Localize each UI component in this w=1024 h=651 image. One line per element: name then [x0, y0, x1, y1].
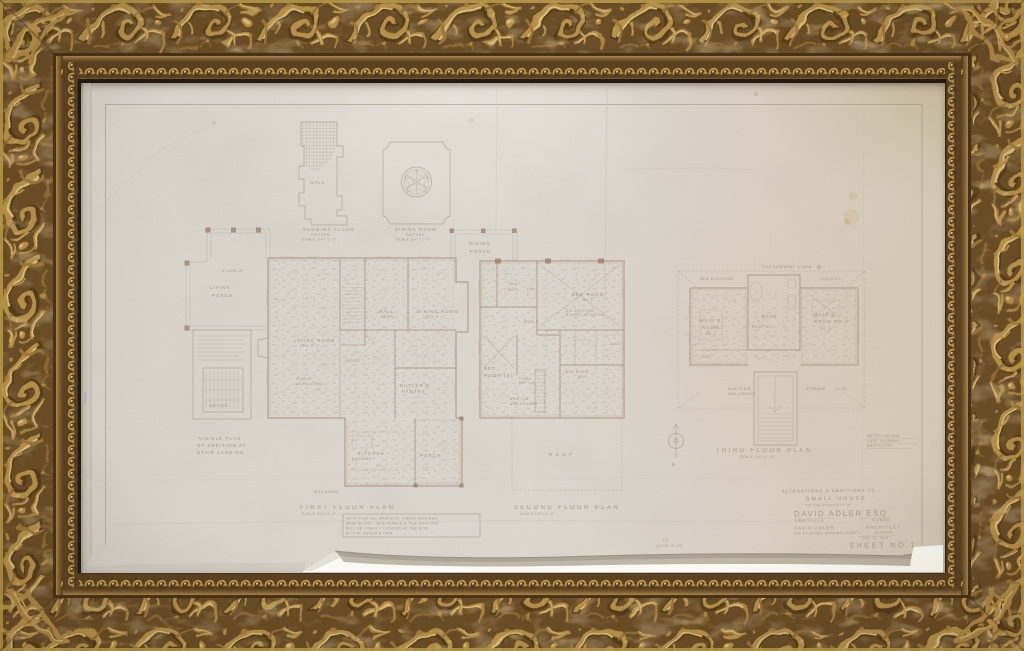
svg-text:ALTERATIONS & ADDITIONS TO: ALTERATIONS & ADDITIONS TO [782, 488, 876, 494]
svg-text:DOWN: DOWN [381, 315, 394, 319]
svg-text:CLOS: CLOS [610, 342, 621, 346]
svg-text:CEIL 9'-2": CEIL 9'-2" [300, 344, 320, 348]
svg-text:OF ADDITION AT: OF ADDITION AT [197, 443, 247, 448]
svg-text:CHICAGO: CHICAGO [874, 530, 893, 534]
svg-text:DAVID ADLER: DAVID ADLER [794, 525, 835, 530]
svg-text:BOTTLE: BOTTLE [519, 381, 535, 385]
svg-text:THIS BASEMENT IN NEW: THIS BASEMENT IN NEW [762, 265, 812, 269]
svg-text:SHEET NO.1: SHEET NO.1 [849, 540, 917, 550]
svg-text:ROOM: ROOM [702, 325, 720, 330]
svg-text:PANELS: PANELS [296, 377, 312, 381]
svg-text:HALL: HALL [310, 180, 325, 185]
svg-text:AND SHOWER: AND SHOWER [510, 402, 538, 406]
svg-text:LIVING: LIVING [210, 285, 231, 290]
svg-text:BED ROOM: BED ROOM [566, 370, 588, 374]
svg-text:LIN: LIN [527, 287, 534, 291]
svg-text:MAID'S: MAID'S [700, 318, 721, 323]
svg-text:W.C.: W.C. [510, 282, 519, 286]
svg-text:LIVING ROOM: LIVING ROOM [294, 338, 335, 343]
svg-text:FENCE PO.: FENCE PO. [820, 277, 843, 281]
svg-text:645 DIVERSEY PARKWAY SOUTH: 645 DIVERSEY PARKWAY SOUTH [794, 531, 860, 536]
svg-text:CLOSET: CLOSET [345, 359, 361, 363]
svg-text:PORCH: PORCH [212, 293, 233, 298]
svg-text:CLOS: CLOS [836, 387, 847, 391]
svg-text:NEW STAIR: NEW STAIR [728, 387, 751, 391]
svg-text:FIRST FLOOR PLAN: FIRST FLOOR PLAN [300, 505, 395, 511]
svg-text:PANTRY: PANTRY [402, 389, 426, 394]
svg-text:DINING ROOM: DINING ROOM [417, 309, 459, 314]
svg-text:AS EXISTING: AS EXISTING [296, 382, 323, 386]
svg-text:DAVID ADLER ESQ: DAVID ADLER ESQ [794, 509, 888, 519]
svg-text:NO.2: NO.2 [583, 298, 593, 302]
svg-text:ILLINOIS: ILLINOIS [872, 518, 890, 522]
svg-text:'VISIBLE PLAN: 'VISIBLE PLAN [197, 436, 241, 441]
svg-text:SCALE 1/4"=1'-0": SCALE 1/4"=1'-0" [302, 512, 337, 516]
svg-text:EXCEPT AS NOTED: EXCEPT AS NOTED [566, 313, 605, 317]
svg-text:ARCHITECT: ARCHITECT [866, 524, 901, 529]
svg-text:METRO INDIANA: METRO INDIANA [867, 434, 900, 438]
svg-text:STORAGE: STORAGE [806, 387, 826, 391]
svg-text:NO.1: NO.1 [706, 332, 716, 336]
svg-text:NO.1: NO.1 [578, 375, 588, 379]
svg-text:CEIL 9': CEIL 9' [425, 315, 439, 319]
svg-text:ROOM NO.3: ROOM NO.3 [814, 319, 849, 324]
svg-text:BUTLER'S: BUTLER'S [400, 383, 430, 388]
svg-text:NEW TUB: NEW TUB [510, 397, 529, 401]
svg-text:HALL: HALL [524, 319, 539, 324]
svg-text:LIBERTYVILLE: LIBERTYVILLE [795, 519, 824, 523]
svg-text:BED: BED [484, 366, 496, 371]
svg-text:TO THE PROPERTY OF: TO THE PROPERTY OF [806, 503, 852, 507]
svg-text:BASE BLOCK, TRIM PANELS & TILE: BASE BLOCK, TRIM PANELS & TILE EXISTING [346, 522, 439, 526]
svg-text:AND LANDING: AND LANDING [728, 392, 756, 396]
svg-text:SCALE 3/4"=1'-0": SCALE 3/4"=1'-0" [396, 238, 431, 242]
svg-text:CAPTION: CAPTION [209, 404, 227, 408]
svg-text:WILL BE FINALLY LOCATED AT THE: WILL BE FINALLY LOCATED AT THE SITE [346, 527, 428, 531]
svg-text:THIRD FLOOR PLAN: THIRD FLOOR PLAN [716, 448, 812, 454]
svg-text:R O O F: R O O F [549, 452, 573, 457]
svg-text:SCALE 1/4"=1'-0": SCALE 1/4"=1'-0" [520, 512, 555, 516]
svg-text:PATTERN: PATTERN [406, 233, 425, 237]
svg-text:DINING: DINING [469, 241, 491, 246]
svg-text:STAIR LANDING: STAIR LANDING [197, 450, 244, 455]
svg-text:KITCHEN: KITCHEN [358, 451, 385, 456]
svg-text:SCALE 3/4"=1'-0": SCALE 3/4"=1'-0" [302, 238, 337, 242]
svg-text:PATTERN: PATTERN [311, 233, 330, 237]
svg-text:SCALE 1/4"=1'-0": SCALE 1/4"=1'-0" [740, 455, 775, 459]
svg-text:CASE SHOWING: CASE SHOWING [867, 439, 899, 443]
svg-text:BY THE OWNER'S OWN: BY THE OWNER'S OWN [346, 532, 393, 536]
svg-text:ROOM (3): ROOM (3) [484, 373, 513, 378]
svg-text:MILL HOUSE: MILL HOUSE [314, 490, 339, 494]
svg-text:BATH: BATH [762, 314, 778, 319]
svg-text:NO. 3: NO. 3 [820, 327, 831, 331]
svg-text:NOTE THAT ALL MARKETS, LINATE: NOTE THAT ALL MARKETS, LINATE RAILINGS, [346, 517, 439, 521]
svg-text:BED-ROOM: BED-ROOM [572, 292, 605, 297]
svg-text:ASSOCIATED: ASSOCIATED [867, 444, 893, 448]
svg-text:SHOWING FLOOR: SHOWING FLOOR [303, 227, 355, 232]
svg-text:DINING ROOM: DINING ROOM [395, 227, 437, 232]
svg-text:EXISTING: EXISTING [752, 325, 772, 329]
svg-text:BATH: BATH [508, 288, 519, 292]
svg-text:PORCH: PORCH [470, 249, 491, 254]
svg-text:N: N [672, 462, 676, 467]
svg-text:EXISTING: EXISTING [352, 457, 372, 461]
svg-text:MAID'S: MAID'S [814, 312, 835, 317]
svg-text:SMALL HOUSE: SMALL HOUSE [806, 496, 867, 503]
svg-text:PORCH: PORCH [420, 453, 441, 458]
svg-text:CLOS: CLOS [700, 355, 711, 359]
svg-text:NEW ELEVATION: NEW ELEVATION [700, 277, 734, 281]
svg-text:(4,049 10-49): (4,049 10-49) [656, 544, 683, 548]
svg-text:STAIRS UP: STAIRS UP [222, 269, 244, 273]
svg-text:HALL: HALL [379, 309, 394, 314]
svg-text:SECOND FLOOR PLAN: SECOND FLOOR PLAN [514, 505, 620, 511]
